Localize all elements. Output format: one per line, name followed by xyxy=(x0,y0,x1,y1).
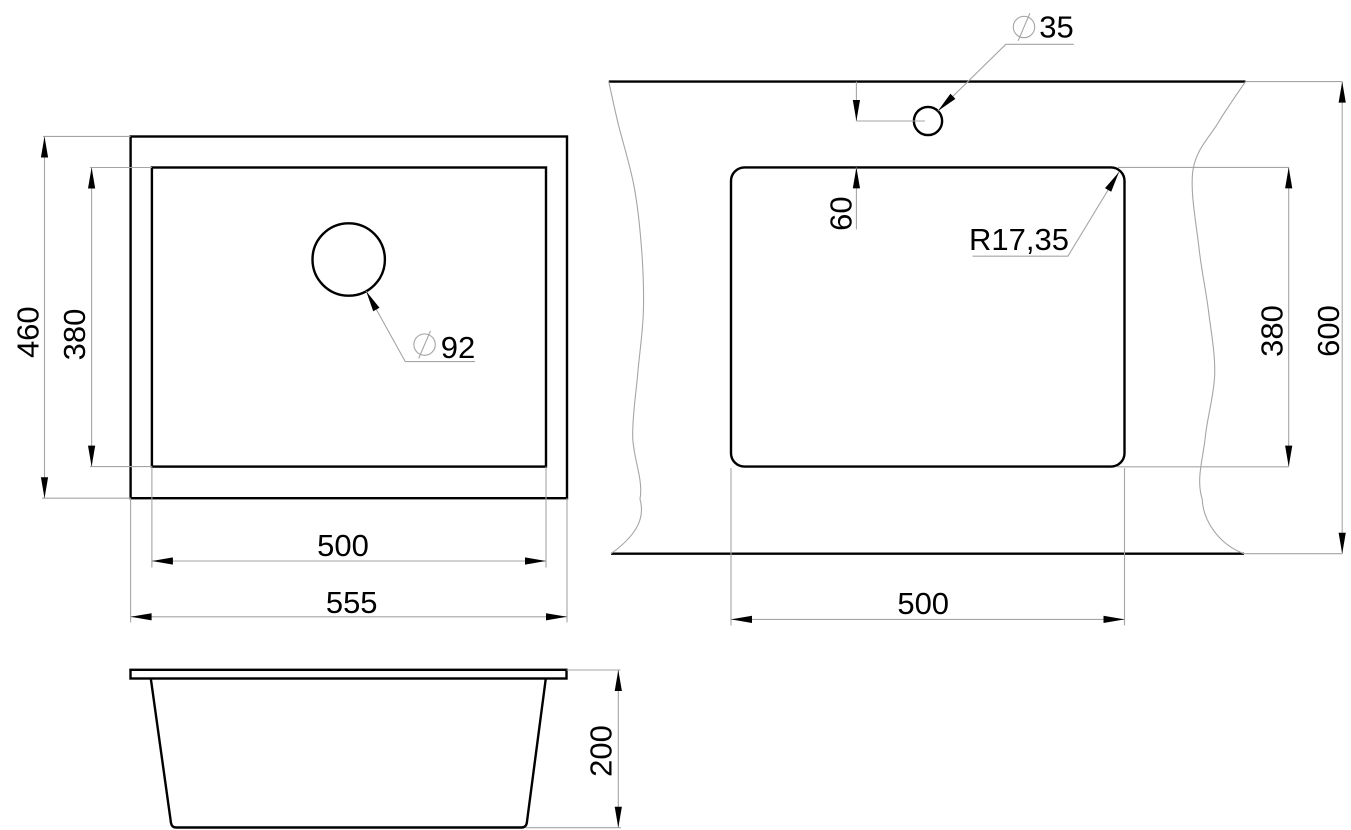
svg-text:380: 380 xyxy=(1254,305,1289,357)
svg-text:500: 500 xyxy=(317,528,369,563)
svg-text:460: 460 xyxy=(11,306,46,358)
svg-text:380: 380 xyxy=(57,309,92,361)
svg-text:500: 500 xyxy=(897,586,949,621)
svg-text:200: 200 xyxy=(584,725,619,777)
svg-text:60: 60 xyxy=(823,196,858,230)
svg-text:555: 555 xyxy=(326,585,378,620)
svg-text:35: 35 xyxy=(1039,10,1073,45)
svg-text:600: 600 xyxy=(1311,305,1346,357)
svg-text:R17,35: R17,35 xyxy=(969,222,1069,257)
svg-text:92: 92 xyxy=(441,330,475,365)
